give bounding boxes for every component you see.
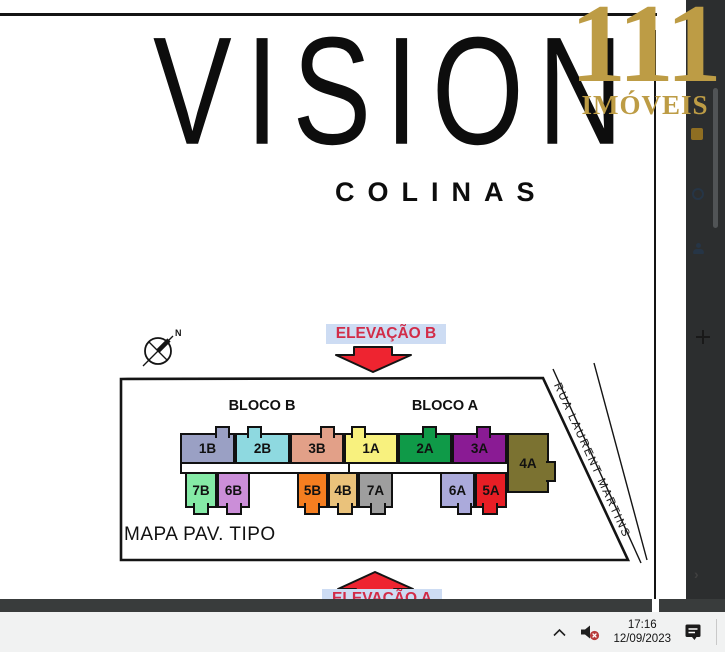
unit-label: 4B <box>334 483 351 498</box>
chevron-up-icon[interactable] <box>552 627 567 638</box>
chevron-right-icon[interactable]: › <box>694 566 699 582</box>
unit-label: 3B <box>308 441 325 456</box>
unit-label: 5B <box>304 483 321 498</box>
unit-label: 2B <box>254 441 271 456</box>
window-bottom-edge <box>0 599 725 612</box>
north-compass-icon: N <box>136 324 190 372</box>
elevation-b-arrow-icon <box>334 346 414 374</box>
bloco-b-heading: BLOCO B <box>212 398 312 414</box>
unit-7b: 7B <box>185 472 217 508</box>
unit-label: 6A <box>449 483 466 498</box>
unit-label: 4A <box>519 456 536 471</box>
unit-6b: 6B <box>217 472 250 508</box>
poster-subtitle: COLINAS <box>335 177 548 208</box>
unit-1a: 1A <box>344 433 398 464</box>
brand-number: 111 <box>565 0 725 100</box>
unit-label: 5A <box>482 483 499 498</box>
clock-date: 12/09/2023 <box>613 632 671 646</box>
unit-label: 7A <box>367 483 384 498</box>
unit-tab <box>215 426 230 438</box>
unit-2b: 2B <box>235 433 290 464</box>
compass-n-label: N <box>175 328 182 338</box>
taskbar-clock[interactable]: 17:16 12/09/2023 <box>613 618 671 646</box>
unit-label: 1A <box>362 441 379 456</box>
unit-tab <box>247 426 262 438</box>
unit-tab <box>351 426 366 438</box>
unit-3a: 3A <box>452 433 507 464</box>
unit-tab <box>320 426 335 438</box>
unit-6a: 6A <box>440 472 475 508</box>
unit-label: 7B <box>192 483 209 498</box>
unit-1b: 1B <box>180 433 235 464</box>
unit-label: 6B <box>225 483 242 498</box>
unit-7a: 7A <box>358 472 393 508</box>
unit-tab <box>457 503 472 515</box>
unit-tab <box>476 426 491 438</box>
unit-label: 1B <box>199 441 216 456</box>
unit-4a-notch <box>546 461 556 482</box>
unit-tab <box>193 503 209 515</box>
unit-4a: 4A <box>507 433 549 493</box>
elevation-b-label: ELEVAÇÃO B <box>326 324 446 344</box>
brand-logo: 111 IMÓVEIS <box>565 0 725 119</box>
unit-5b: 5B <box>297 472 328 508</box>
unit-label: 2A <box>416 441 433 456</box>
unit-3b: 3B <box>290 433 344 464</box>
unit-2a: 2A <box>398 433 452 464</box>
unit-tab <box>226 503 242 515</box>
unit-tab <box>370 503 386 515</box>
taskbar-separator <box>716 619 717 645</box>
add-icon[interactable] <box>696 330 710 344</box>
people-icon[interactable] <box>693 243 704 255</box>
map-caption: MAPA PAV. TIPO <box>124 524 276 546</box>
unit-tab <box>482 503 498 515</box>
image-thumbnail[interactable] <box>691 128 703 140</box>
unit-5a: 5A <box>475 472 507 508</box>
unit-tab <box>422 426 437 438</box>
unit-4b: 4B <box>328 472 358 508</box>
brand-name: IMÓVEIS <box>565 92 725 119</box>
unit-label: 3A <box>471 441 488 456</box>
page-edge-notch <box>652 599 659 612</box>
notifications-icon[interactable] <box>684 623 703 641</box>
clock-time: 17:16 <box>613 618 671 632</box>
volume-muted-icon[interactable] <box>580 624 600 641</box>
unit-tab <box>304 503 320 515</box>
bloco-a-heading: BLOCO A <box>395 398 495 414</box>
taskbar: 17:16 12/09/2023 <box>0 612 725 652</box>
history-icon[interactable] <box>692 188 704 200</box>
unit-tab <box>337 503 353 515</box>
